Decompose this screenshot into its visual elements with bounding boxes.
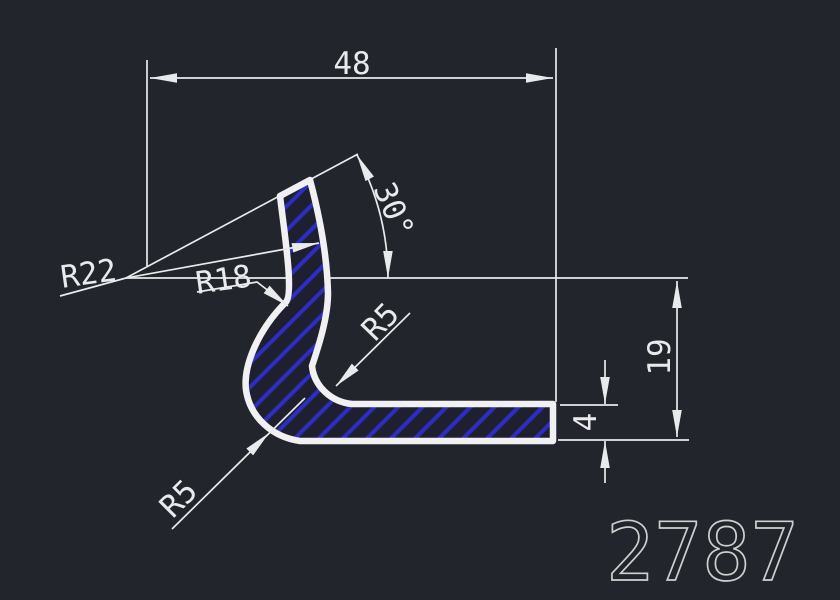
technical-drawing: 48 30° R22 R18 R5 R5 19 4 2787: [0, 0, 840, 600]
cad-drawing-canvas[interactable]: 48 30° R22 R18 R5 R5 19 4 2787: [0, 0, 840, 600]
thickness-dimension-label: 4: [568, 413, 604, 432]
part-number-label: 2787: [606, 506, 799, 599]
height-dimension-label: 19: [642, 338, 678, 375]
width-dimension-label: 48: [333, 46, 370, 82]
